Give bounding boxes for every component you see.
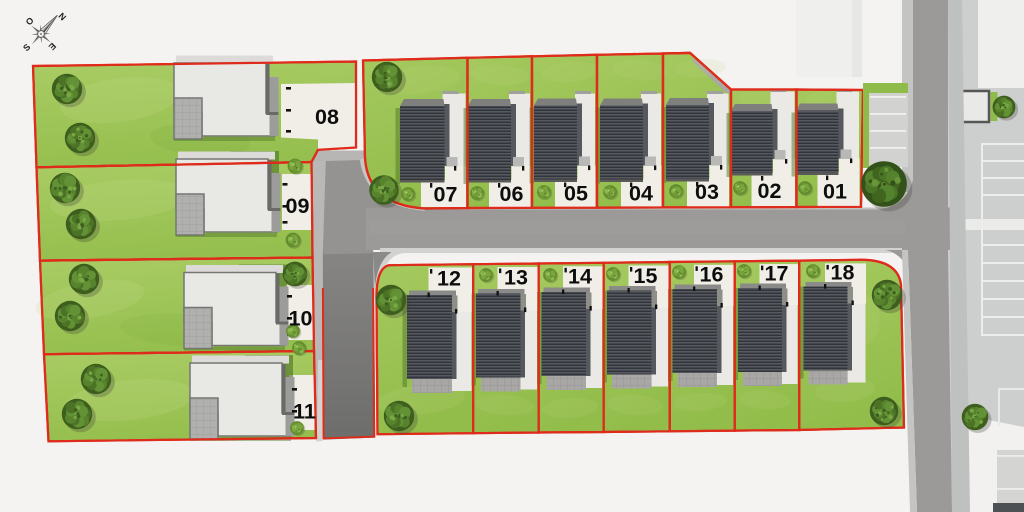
svg-text:13: 13: [504, 266, 528, 290]
svg-text:01: 01: [823, 180, 847, 204]
svg-text:11: 11: [293, 400, 316, 424]
svg-text:16: 16: [700, 263, 724, 287]
svg-text:14: 14: [568, 265, 592, 289]
svg-text:09: 09: [286, 194, 310, 218]
svg-text:17: 17: [765, 262, 789, 286]
svg-text:10: 10: [289, 307, 313, 331]
svg-text:04: 04: [629, 181, 653, 205]
svg-text:18: 18: [831, 261, 855, 285]
svg-text:03: 03: [695, 180, 719, 204]
svg-text:08: 08: [315, 105, 339, 129]
svg-text:15: 15: [634, 264, 658, 288]
svg-text:05: 05: [564, 182, 588, 206]
svg-text:12: 12: [437, 266, 461, 290]
svg-text:07: 07: [434, 183, 458, 207]
svg-text:06: 06: [500, 182, 524, 206]
svg-text:02: 02: [758, 179, 782, 203]
